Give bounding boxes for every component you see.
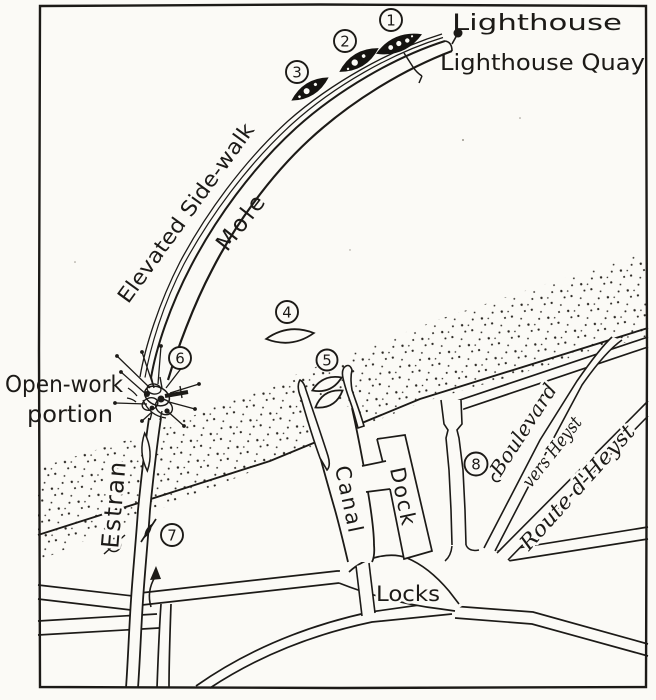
marker-1-number: 1 (386, 12, 396, 30)
marker-4-number: 4 (282, 304, 292, 322)
marker-6: 6 (169, 347, 191, 369)
marker-7-number: 7 (167, 527, 177, 545)
marker-2-number: 2 (340, 33, 350, 51)
marker-1: 1 (380, 9, 402, 31)
marker-5: 5 (317, 350, 338, 371)
marker-4: 4 (276, 301, 298, 323)
marker-8: 8 (465, 453, 488, 476)
lighthouse-label: Lighthouse (452, 10, 622, 36)
lighthouse-quay-label: Lighthouse Quay (440, 50, 645, 76)
map-svg: Lighthouse Lighthouse Quay Elevated Side… (0, 0, 656, 700)
open-work-label-line1: Open-work (5, 372, 124, 398)
marker-6-number: 6 (175, 350, 185, 368)
marker-3: 3 (286, 61, 308, 83)
marker-7: 7 (161, 524, 183, 546)
marker-3-number: 3 (292, 64, 302, 82)
map-page: Lighthouse Lighthouse Quay Elevated Side… (0, 0, 656, 700)
locks-label: Locks (376, 582, 440, 606)
marker-8-number: 8 (471, 456, 481, 474)
marker-2: 2 (334, 30, 356, 52)
marker-5-number: 5 (322, 352, 332, 370)
